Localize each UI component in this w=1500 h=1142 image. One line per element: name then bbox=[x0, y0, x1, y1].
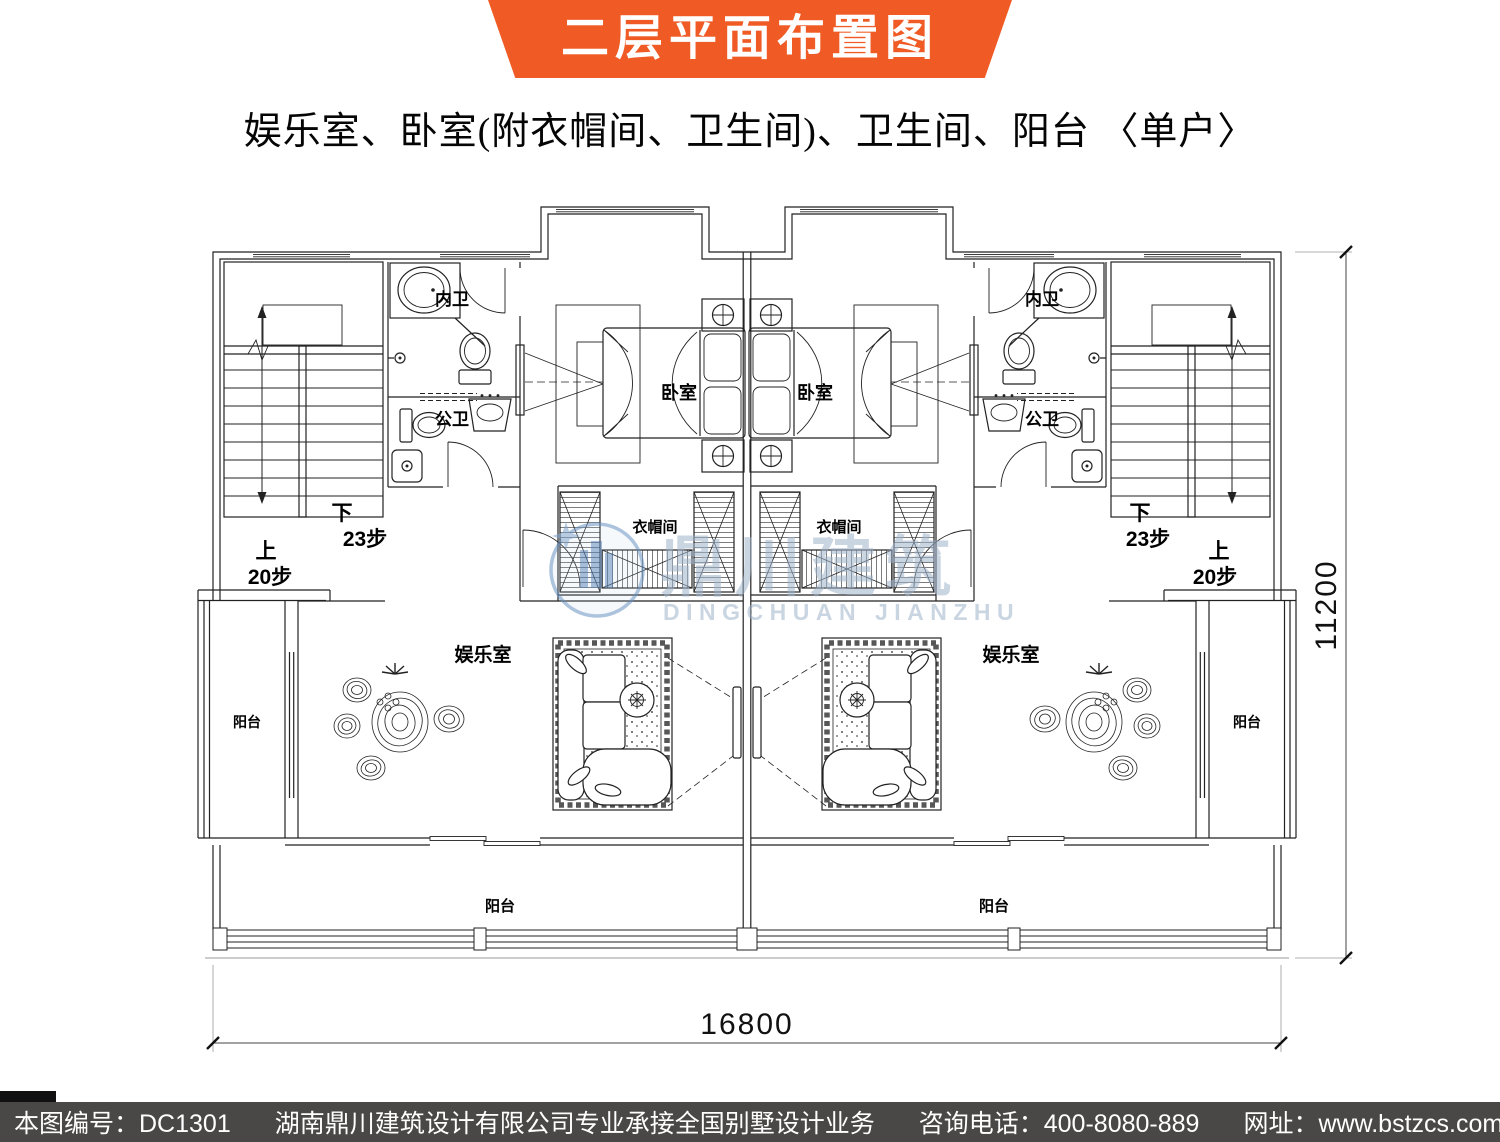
room-label-bedroom: 卧室 bbox=[661, 382, 697, 403]
room-label-balcony: 阳台 bbox=[485, 897, 515, 915]
stair-label-up: 上 bbox=[256, 540, 277, 563]
floor-plan-drawing: 16800 11200 内卫 公卫 卧室 衣帽间 娱乐室 阳台 阳台 下 23步… bbox=[0, 0, 1500, 1142]
stair-label-down-steps: 23步 bbox=[1126, 527, 1170, 551]
room-label-recreation: 娱乐室 bbox=[982, 643, 1039, 666]
room-label-bedroom: 卧室 bbox=[797, 382, 833, 403]
room-label-recreation: 娱乐室 bbox=[454, 643, 511, 666]
room-label-master-bath: 内卫 bbox=[435, 289, 469, 309]
watermark-en: DINGCHUAN JIANZHU bbox=[663, 599, 1020, 625]
room-label-shared-bath: 公卫 bbox=[1025, 410, 1059, 429]
dimension-width: 16800 bbox=[700, 1008, 793, 1041]
footer-website[interactable]: 网址：www.bstzcs.com bbox=[1243, 1104, 1500, 1140]
stair-label-down: 下 bbox=[332, 502, 353, 525]
footer-notch bbox=[0, 1091, 56, 1102]
dimension-bottom: 16800 bbox=[207, 965, 1287, 1052]
footer-company: 湖南鼎川建筑设计有限公司专业承接全国别墅设计业务 bbox=[275, 1104, 875, 1140]
stair-label-up: 上 bbox=[1209, 540, 1230, 563]
room-label-master-bath: 内卫 bbox=[1025, 289, 1059, 309]
bottom-balcony-railing bbox=[205, 928, 1289, 958]
watermark: 鼎川建筑 DINGCHUAN JIANZHU bbox=[551, 522, 1020, 625]
room-label-balcony: 阳台 bbox=[233, 714, 261, 730]
stair-label-down: 下 bbox=[1130, 502, 1151, 525]
room-label-balcony: 阳台 bbox=[1233, 714, 1261, 730]
stair-label-down-steps: 23步 bbox=[343, 527, 387, 551]
stair-label-up-steps: 20步 bbox=[1193, 565, 1237, 589]
watermark-cn: 鼎川建筑 bbox=[660, 530, 960, 604]
footer-phone: 咨询电话：400-8080-889 bbox=[919, 1104, 1200, 1140]
dimension-height: 11200 bbox=[1310, 559, 1343, 650]
room-label-balcony: 阳台 bbox=[979, 897, 1009, 915]
footer-drawing-number: 本图编号：DC1301 bbox=[14, 1104, 231, 1140]
footer-bar: 本图编号：DC1301 湖南鼎川建筑设计有限公司专业承接全国别墅设计业务 咨询电… bbox=[0, 1102, 1500, 1142]
page: 二层平面布置图 娱乐室、卧室(附衣帽间、卫生间)、卫生间、阳台 〈单户〉 bbox=[0, 0, 1500, 1142]
stair-label-up-steps: 20步 bbox=[248, 565, 292, 589]
dimension-right: 11200 bbox=[1295, 246, 1352, 964]
room-label-shared-bath: 公卫 bbox=[435, 410, 469, 429]
